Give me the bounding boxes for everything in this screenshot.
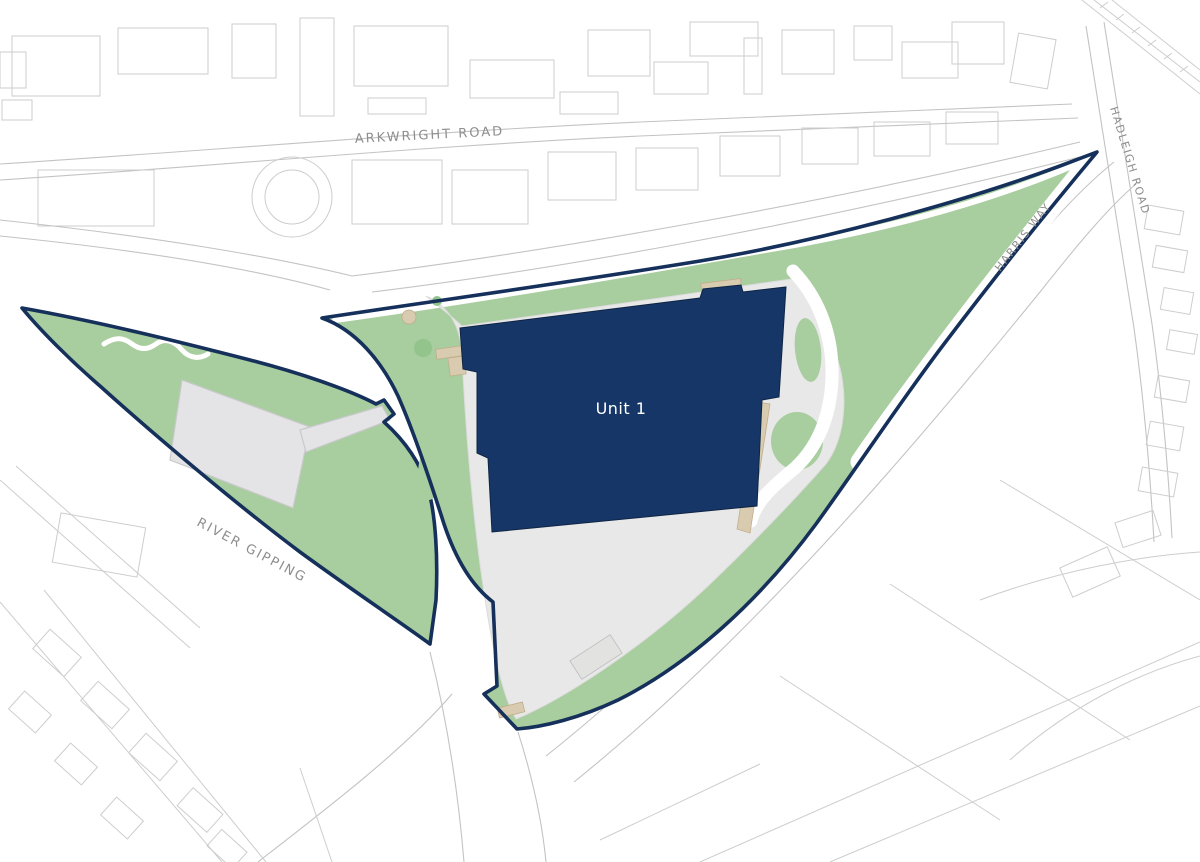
- context-buildings-east: [1060, 205, 1198, 597]
- tree-tan: [402, 310, 416, 324]
- site-plan-canvas: Unit 1 ARKWRIGHT ROAD HADLEIGH ROAD HARR…: [0, 0, 1200, 862]
- context-buildings-mid: [38, 112, 998, 237]
- hadleigh-road-lines: [1086, 22, 1172, 542]
- unit1-label: Unit 1: [596, 399, 647, 418]
- railway-hatching: [1082, 0, 1200, 94]
- context-buildings-north: [0, 18, 1056, 120]
- site-plan-map: Unit 1 ARKWRIGHT ROAD HADLEIGH ROAD HARR…: [0, 0, 1200, 862]
- arkwright-road-label: ARKWRIGHT ROAD: [354, 124, 504, 147]
- arkwright-road-lines: [0, 104, 1078, 180]
